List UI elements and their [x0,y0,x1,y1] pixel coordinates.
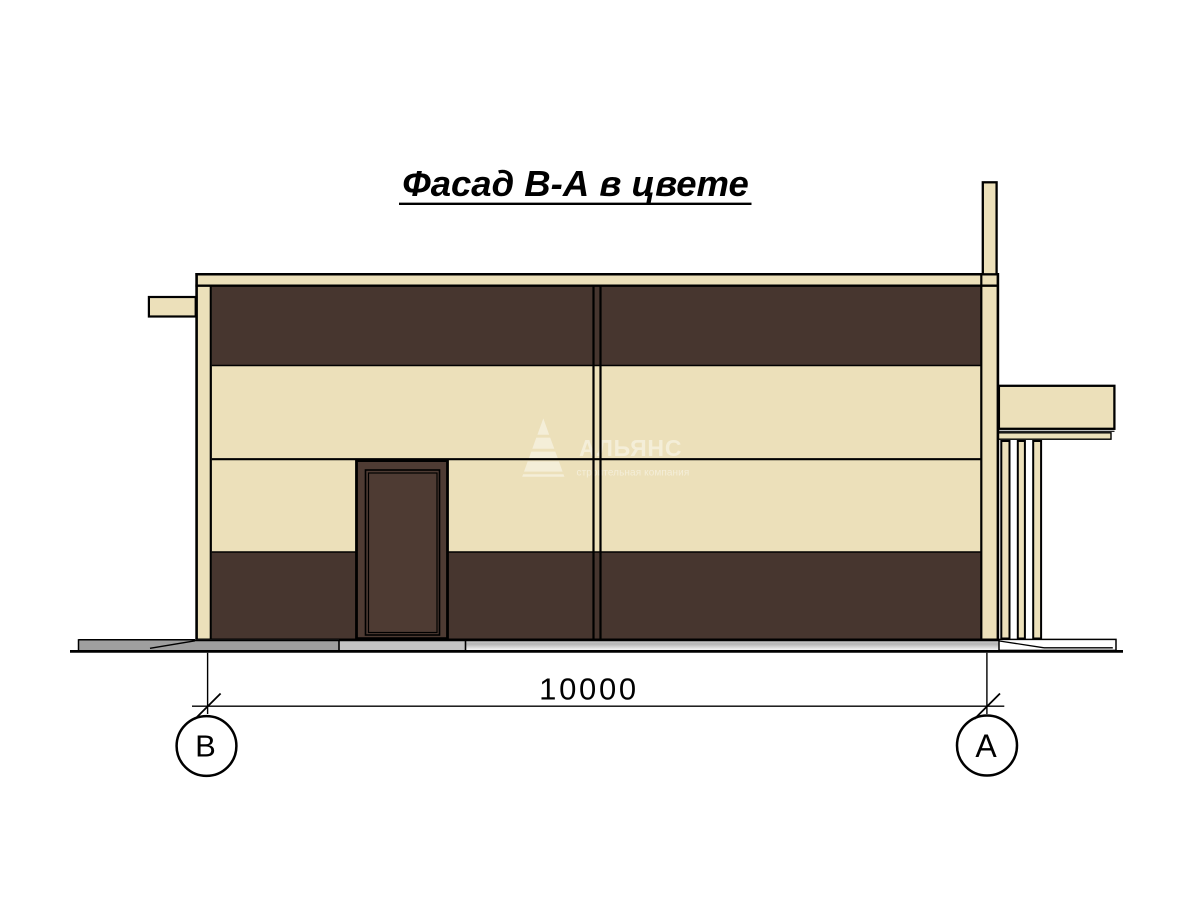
svg-text:В: В [195,729,216,764]
svg-text:Фасад В-А в цвете: Фасад В-А в цвете [402,163,749,204]
svg-text:10000: 10000 [539,672,639,707]
svg-text:А: А [975,728,997,764]
